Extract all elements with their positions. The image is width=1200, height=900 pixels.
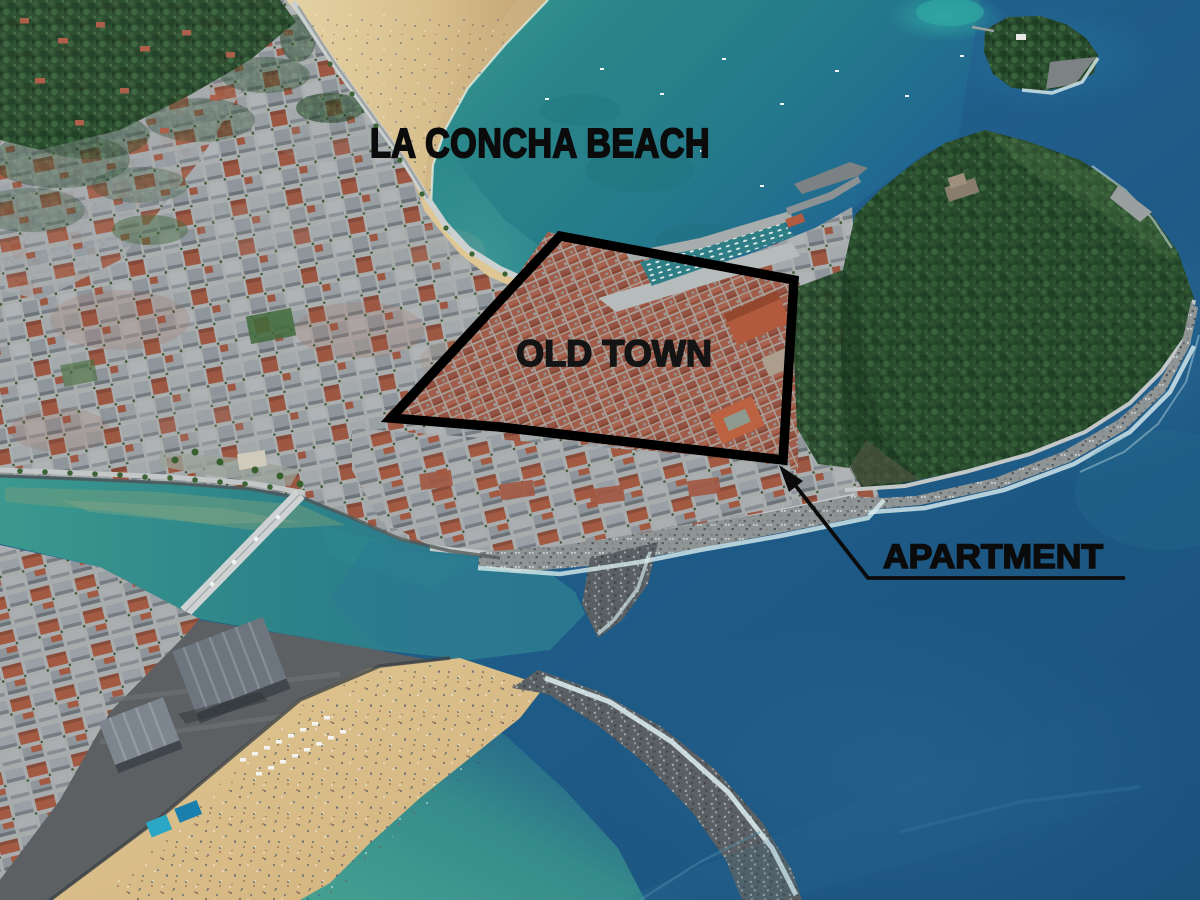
svg-text:LA CONCHA BEACH: LA CONCHA BEACH [370,120,710,166]
svg-text:APARTMENT: APARTMENT [883,538,1103,576]
svg-text:OLD TOWN: OLD TOWN [516,333,712,374]
